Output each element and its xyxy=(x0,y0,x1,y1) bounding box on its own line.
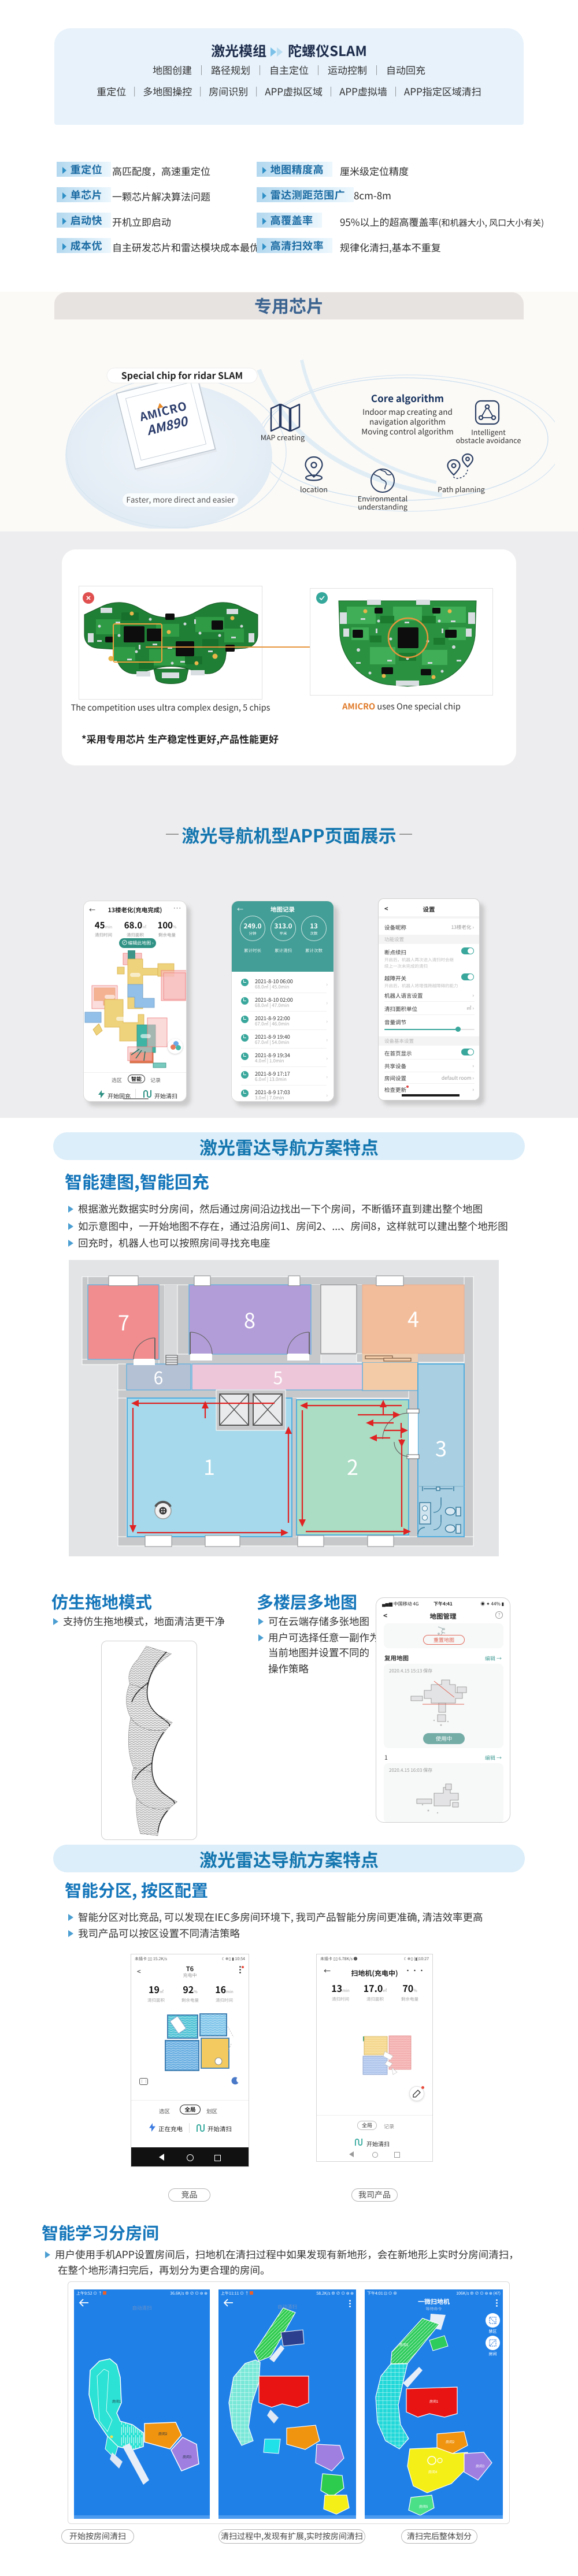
svg-text:Core algorithm: Core algorithm xyxy=(371,391,444,405)
svg-text:Moving control algorithm: Moving control algorithm xyxy=(361,425,453,437)
svg-text:1: 1 xyxy=(203,1451,215,1481)
svg-text:obstacle avoidance: obstacle avoidance xyxy=(456,434,521,445)
svg-text:location: location xyxy=(300,484,328,495)
svg-text:Faster, more direct and easier: Faster, more direct and easier xyxy=(126,493,235,505)
svg-text:房间1: 房间1 xyxy=(112,2399,121,2404)
svg-text:房间2: 房间2 xyxy=(446,2439,455,2444)
svg-text:understanding: understanding xyxy=(358,501,407,512)
svg-text:房间5: 房间5 xyxy=(419,2504,428,2509)
svg-text:房间2: 房间2 xyxy=(399,2342,409,2347)
svg-text:8: 8 xyxy=(244,1304,255,1335)
svg-text:5: 5 xyxy=(273,1364,283,1389)
svg-text:3: 3 xyxy=(435,1433,447,1463)
svg-text:6: 6 xyxy=(154,1364,164,1389)
svg-text:房间3: 房间3 xyxy=(476,2463,484,2469)
svg-text:房间2: 房间2 xyxy=(158,2431,168,2436)
svg-text:Path planning: Path planning xyxy=(438,484,485,495)
svg-text:房间1: 房间1 xyxy=(429,2399,438,2404)
svg-text:7: 7 xyxy=(118,1307,129,1337)
svg-text:房间4: 房间4 xyxy=(428,2469,438,2474)
svg-text:4: 4 xyxy=(407,1303,419,1333)
svg-text:房间3: 房间3 xyxy=(183,2454,191,2459)
svg-text:MAP creating: MAP creating xyxy=(261,432,305,443)
svg-text:2: 2 xyxy=(347,1451,358,1481)
svg-text:Special chip for ridar SLAM: Special chip for ridar SLAM xyxy=(121,368,243,382)
